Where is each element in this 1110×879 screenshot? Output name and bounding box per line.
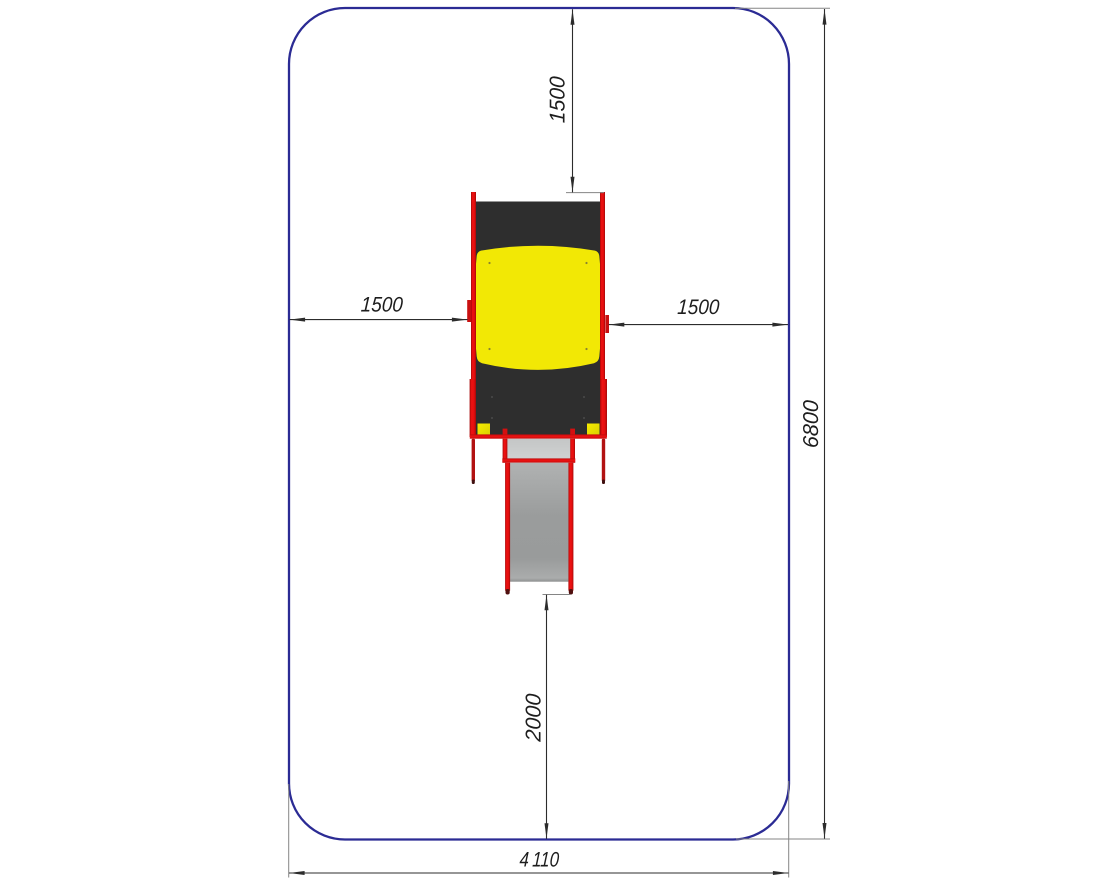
svg-text:1500: 1500 <box>360 294 404 317</box>
svg-text:1500: 1500 <box>546 76 570 124</box>
svg-text:6800: 6800 <box>799 400 823 449</box>
svg-text:1500: 1500 <box>677 296 721 319</box>
svg-text:4 110: 4 110 <box>519 849 560 872</box>
svg-text:2000: 2000 <box>522 693 546 743</box>
